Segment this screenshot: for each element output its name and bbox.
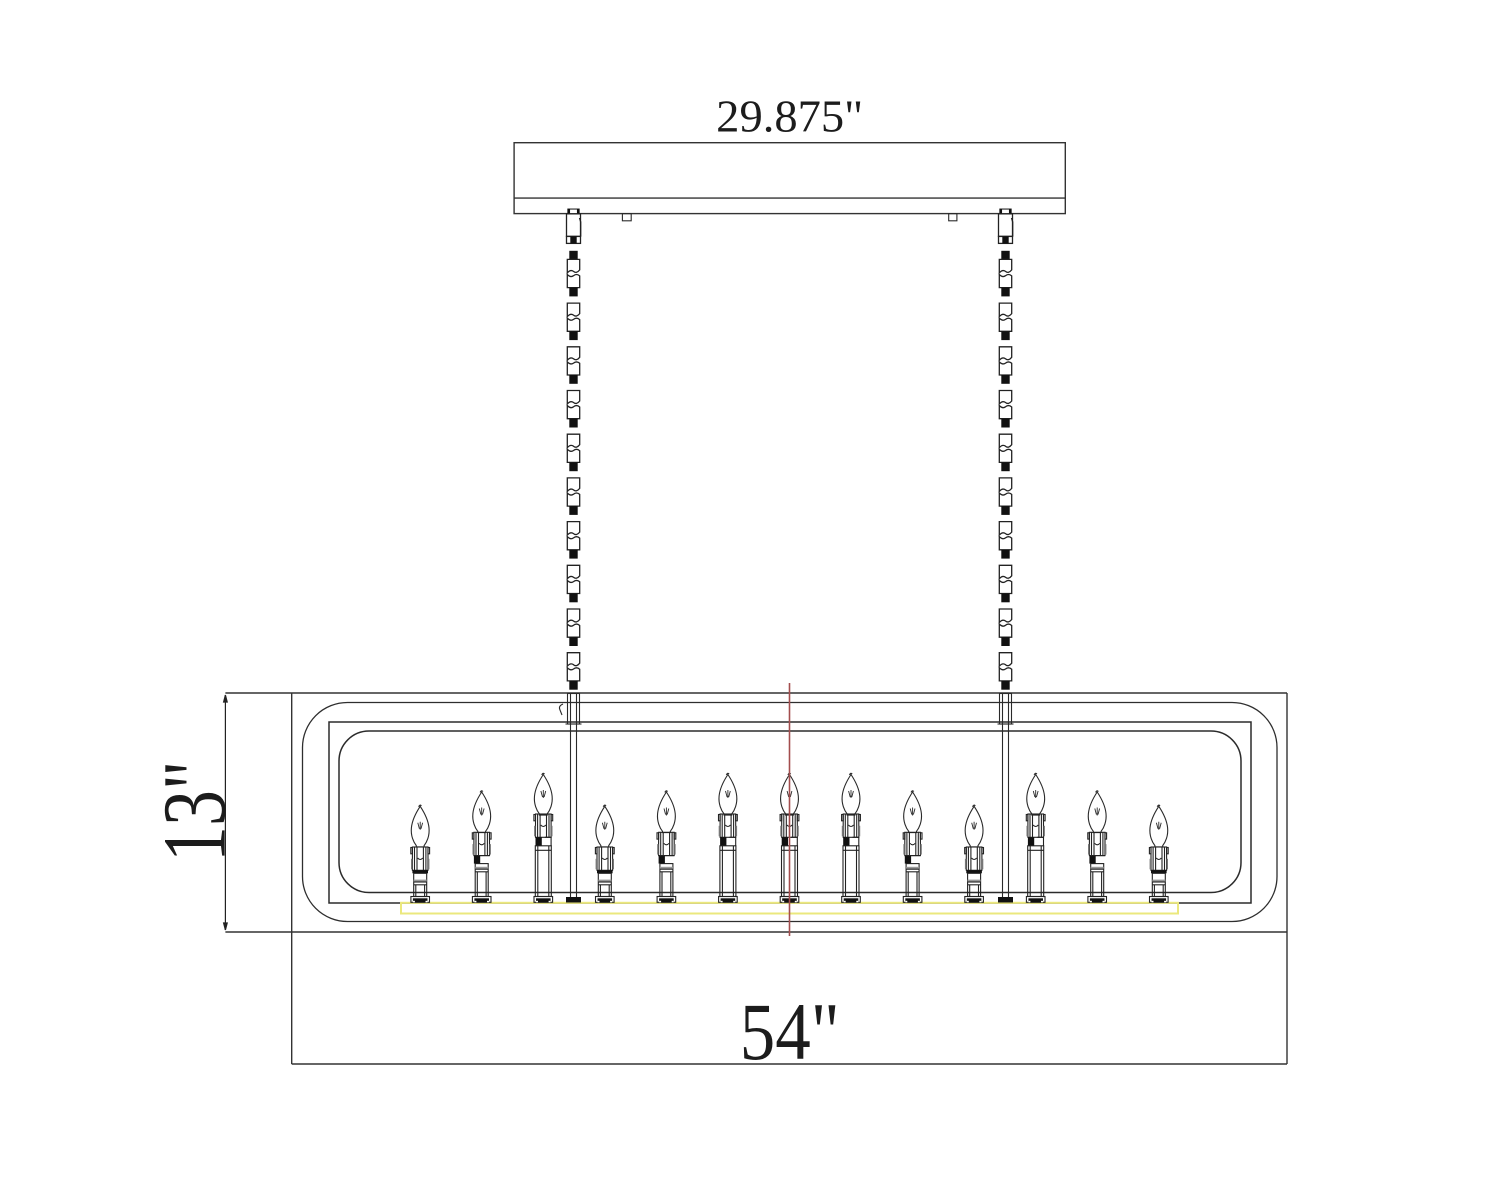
svg-text:29.875": 29.875" xyxy=(716,91,863,142)
svg-text:13": 13" xyxy=(144,761,244,862)
svg-text:54": 54" xyxy=(740,986,840,1077)
